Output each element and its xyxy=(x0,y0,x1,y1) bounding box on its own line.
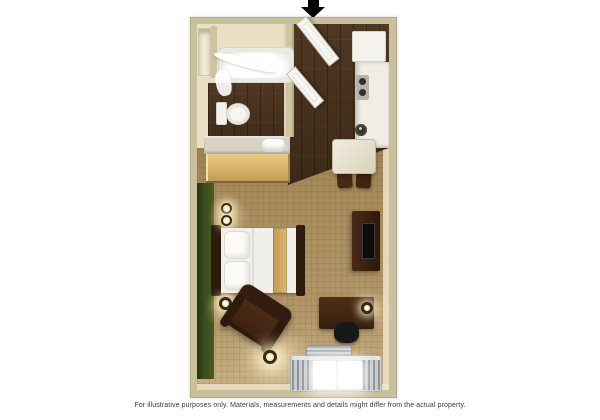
burner-icon xyxy=(359,89,366,96)
wall-sconce-icon xyxy=(221,203,232,214)
burner-icon xyxy=(359,78,366,85)
kitchen-sink xyxy=(355,124,367,136)
vanity-cabinet xyxy=(206,154,290,183)
dining-table xyxy=(332,139,376,174)
window-pane xyxy=(338,361,362,389)
toilet xyxy=(226,103,250,125)
refrigerator xyxy=(352,31,386,62)
entrance-arrow-icon xyxy=(308,0,319,7)
sink-faucet xyxy=(359,127,362,130)
desk-lamp-icon xyxy=(361,302,373,314)
window-curtain xyxy=(363,360,380,390)
wall-sconce-icon xyxy=(221,215,232,226)
pillow xyxy=(224,231,250,259)
bed-footboard xyxy=(296,225,305,296)
disclaimer-text: For illustrative purposes only. Material… xyxy=(0,402,600,409)
desk-chair xyxy=(334,322,359,343)
bed-sheet-fold xyxy=(252,228,254,293)
floor-lamp-icon xyxy=(263,350,277,364)
towel xyxy=(261,138,286,152)
right-wall-face xyxy=(383,148,389,390)
television xyxy=(362,223,375,259)
cooktop xyxy=(356,75,369,100)
floorplan-image: For illustrative purposes only. Material… xyxy=(0,0,600,420)
closet-nook xyxy=(198,28,211,76)
bed-runner xyxy=(273,228,287,293)
bed-headboard xyxy=(211,225,221,296)
window-pane xyxy=(313,361,336,389)
window-curtain xyxy=(292,360,312,390)
